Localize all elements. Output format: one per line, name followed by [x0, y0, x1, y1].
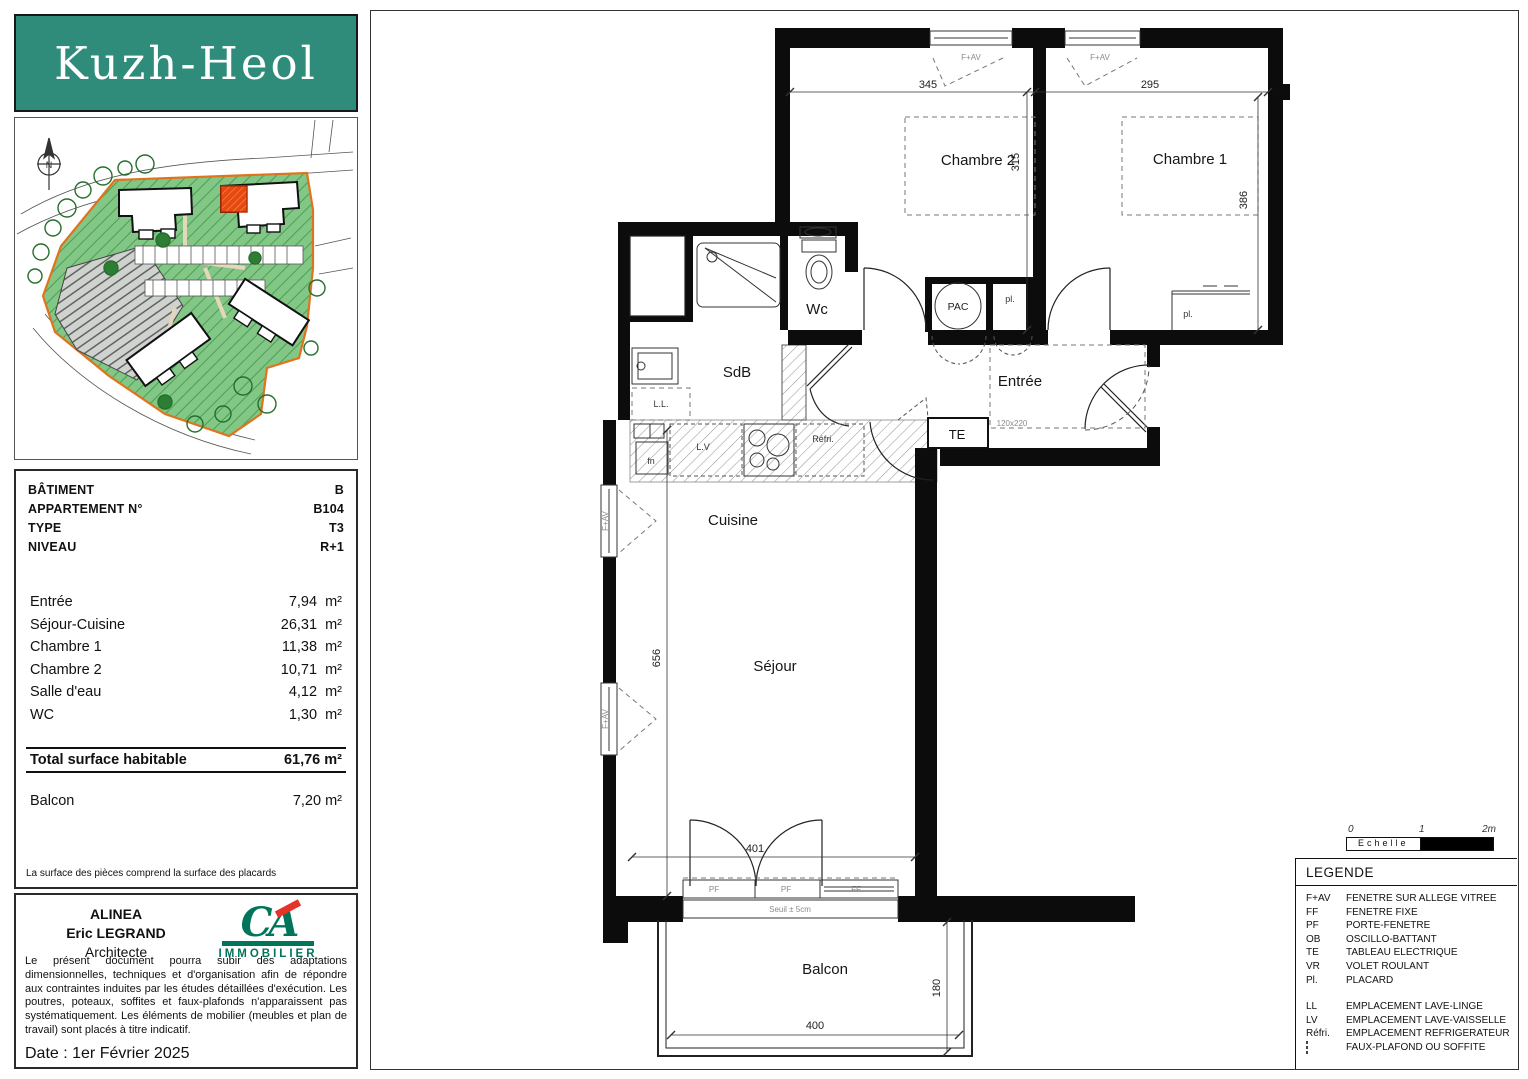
svg-text:F+AV: F+AV	[961, 53, 981, 62]
svg-text:120x220: 120x220	[997, 419, 1028, 428]
tableau-electrique: TE	[928, 418, 988, 448]
svg-text:F+AV: F+AV	[601, 511, 610, 531]
legend-item: PFPORTE-FENETRE	[1306, 919, 1517, 933]
svg-text:Séjour: Séjour	[753, 658, 796, 675]
svg-text:345: 345	[919, 79, 937, 91]
svg-text:PF: PF	[709, 885, 719, 894]
technical-shaft	[630, 236, 685, 316]
svg-text:PAC: PAC	[948, 301, 969, 313]
dimension-labels: 345 295 315 386 656 401 400 180 120x220	[651, 79, 1250, 1032]
sdb-sink	[632, 348, 678, 384]
legend-item-hatch: FAUX-PLAFOND OU SOFFITE	[1306, 1041, 1517, 1055]
placard-chambre1	[1172, 286, 1250, 330]
legend-item: LLEMPLACEMENT LAVE-LINGE	[1306, 1000, 1517, 1014]
svg-text:295: 295	[1141, 79, 1159, 91]
legend-item: FFFENETRE FIXE	[1306, 906, 1517, 920]
svg-text:pl.: pl.	[1183, 309, 1193, 319]
svg-text:FF: FF	[851, 885, 861, 894]
faux-plafond-zones	[630, 345, 937, 482]
svg-text:Réfri.: Réfri.	[812, 434, 834, 444]
scale-bar: 012m Echelle	[1346, 824, 1496, 854]
svg-text:Cuisine: Cuisine	[708, 512, 758, 529]
legend-item: Pl.PLACARD	[1306, 974, 1517, 988]
svg-text:L.V: L.V	[696, 442, 710, 452]
balcony-railing	[658, 920, 972, 1056]
balcony-door-band: PF PF FF Seuil ± 5cm	[683, 878, 898, 918]
legend-item: TETABLEAU ELECTRIQUE	[1306, 946, 1517, 960]
scale-ticks: 012m	[1346, 824, 1496, 837]
door-chambre2	[864, 268, 926, 330]
window-fav-sejour-1: F+AV	[601, 485, 656, 557]
door-sdb	[807, 344, 852, 426]
door-chambre1	[1048, 268, 1110, 330]
svg-text:fn: fn	[647, 456, 655, 466]
svg-text:Chambre 1: Chambre 1	[1153, 151, 1227, 168]
svg-text:SdB: SdB	[723, 364, 751, 381]
svg-text:PF: PF	[781, 885, 791, 894]
svg-text:Wc: Wc	[806, 301, 828, 318]
svg-text:TE: TE	[949, 427, 966, 442]
legend-item: F+AVFENETRE SUR ALLEGE VITREE	[1306, 892, 1517, 906]
scale-black-segment	[1421, 838, 1494, 850]
door-entry	[1085, 365, 1149, 432]
svg-text:Balcon: Balcon	[802, 961, 848, 978]
svg-text:L.L.: L.L.	[653, 399, 668, 409]
shower	[697, 243, 780, 307]
svg-text:180: 180	[931, 979, 943, 997]
legend-title: LEGENDE	[1296, 859, 1517, 886]
svg-text:Chambre 2: Chambre 2	[941, 152, 1015, 169]
legend-item: LVEMPLACEMENT LAVE-VAISSELLE	[1306, 1014, 1517, 1028]
legend-item: Réfri.EMPLACEMENT REFRIGERATEUR	[1306, 1027, 1517, 1041]
faux-plafond-hatch-icon	[1306, 1041, 1308, 1054]
svg-text:401: 401	[746, 843, 764, 855]
svg-text:pl.: pl.	[1005, 294, 1015, 304]
svg-text:386: 386	[1238, 191, 1250, 209]
window-fav-sejour-2: F+AV	[601, 683, 656, 755]
svg-text:F+AV: F+AV	[601, 709, 610, 729]
svg-text:F+AV: F+AV	[1090, 53, 1110, 62]
window-fav-top-2: F+AV	[1065, 31, 1140, 86]
svg-text:400: 400	[806, 1020, 824, 1032]
legend-item: VRVOLET ROULANT	[1306, 960, 1517, 974]
svg-text:Entrée: Entrée	[998, 373, 1042, 390]
window-fav-top-1: F+AV	[930, 31, 1012, 86]
wc-toilet	[800, 227, 836, 289]
floorplan-page: { "logo": { "title": "Kuzh-Heol", "bg_co…	[0, 0, 1528, 1079]
legend-item: OBOSCILLO-BATTANT	[1306, 933, 1517, 947]
svg-text:Seuil ± 5cm: Seuil ± 5cm	[769, 905, 811, 914]
svg-text:656: 656	[651, 649, 663, 667]
pac-unit: PAC	[935, 283, 981, 329]
legend: LEGENDE F+AVFENETRE SUR ALLEGE VITREE FF…	[1295, 858, 1517, 1069]
scale-label: Echelle	[1347, 838, 1421, 850]
